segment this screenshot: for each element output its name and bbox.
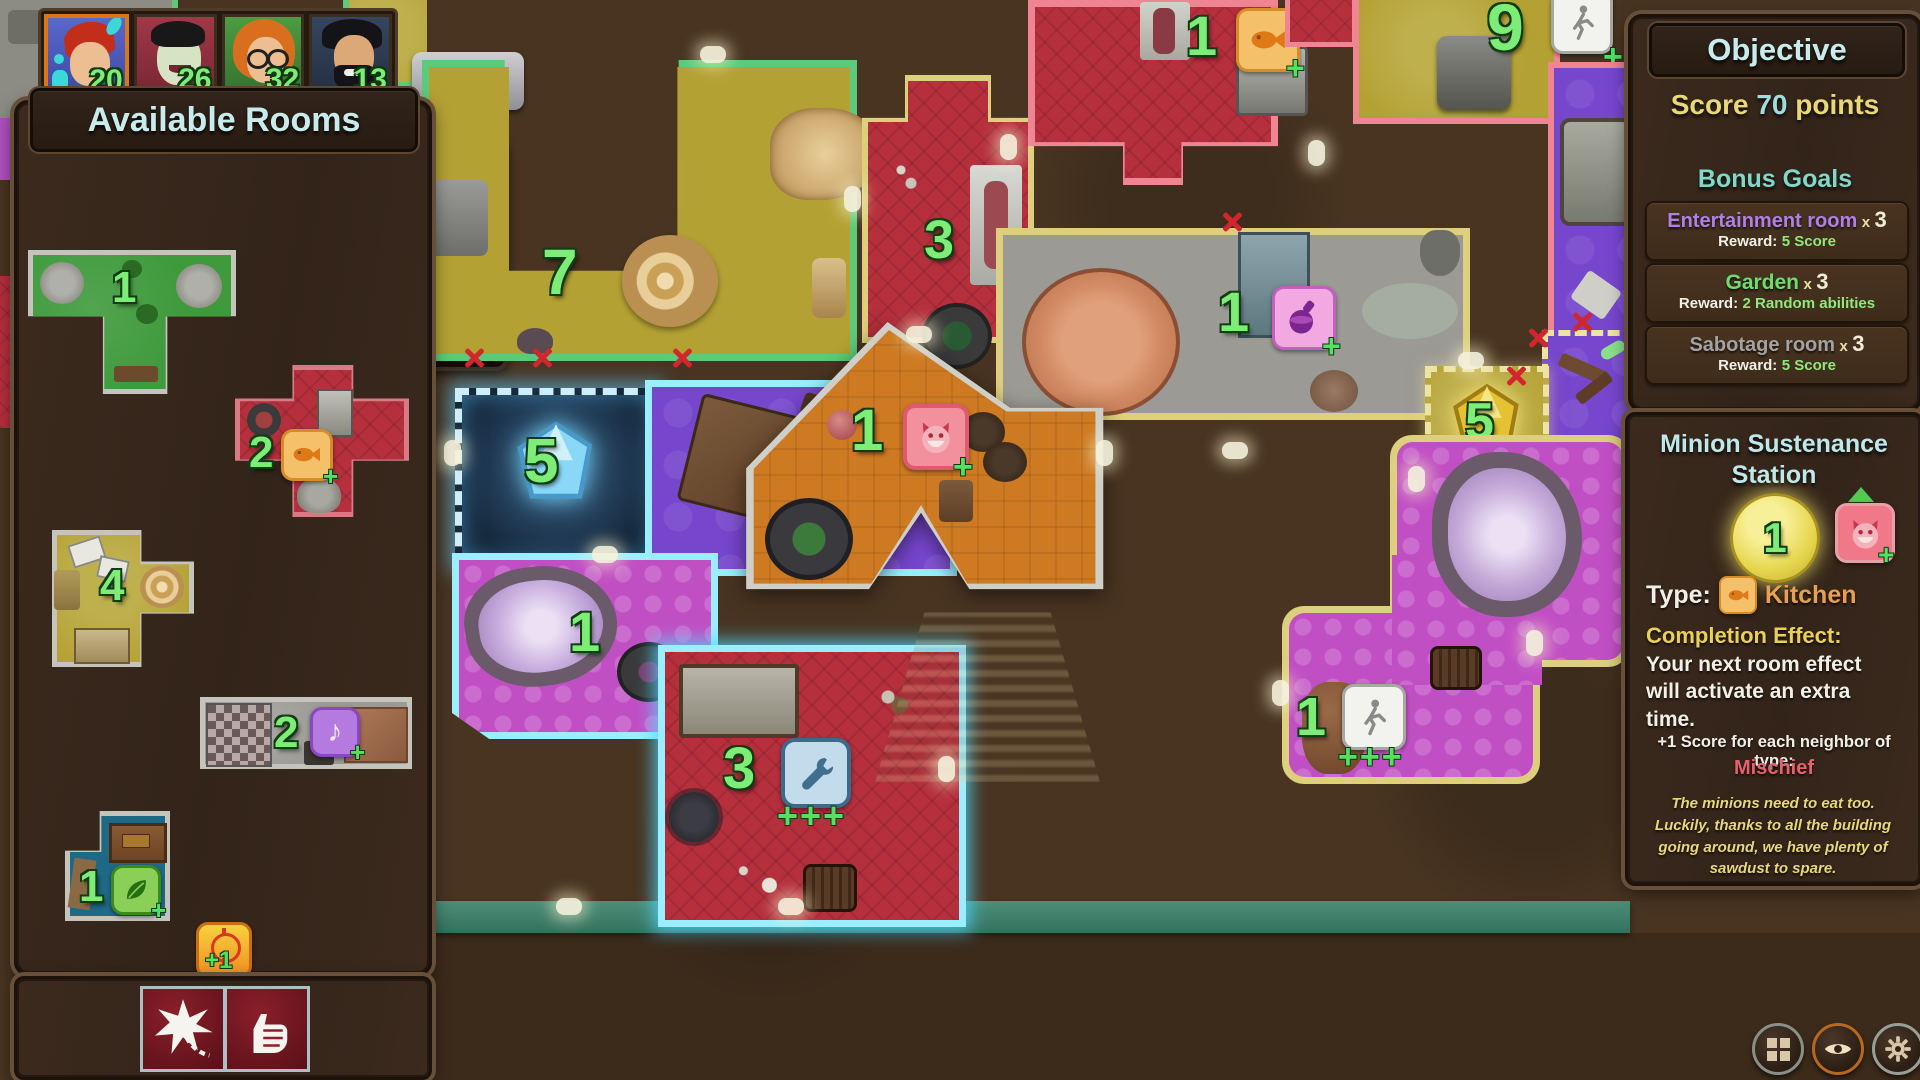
crosshair-tick xyxy=(222,928,226,935)
conveyor-band xyxy=(340,901,1630,933)
plus-marker: + xyxy=(1322,330,1341,362)
objective-panel: Objective Score 70 points Bonus Goals En… xyxy=(1628,14,1920,412)
door-marker xyxy=(1272,680,1289,706)
type-label: Type: xyxy=(1646,581,1711,610)
room-count: 5 xyxy=(524,431,558,493)
lower-dirt xyxy=(340,933,1920,1080)
music-note-glyph: ♪ xyxy=(328,715,343,749)
gear-icon xyxy=(1883,1034,1913,1064)
goal-name: Sabotage room xyxy=(1689,334,1835,356)
door-marker xyxy=(844,186,861,212)
door-marker xyxy=(1222,442,1248,459)
grid-view-button[interactable] xyxy=(1752,1023,1804,1075)
oval-rug xyxy=(1362,283,1458,339)
barrel xyxy=(803,864,857,912)
chair xyxy=(939,480,973,522)
goal-name: Garden xyxy=(1725,271,1799,294)
plus-marker: + xyxy=(1286,52,1305,84)
room-count: 3 xyxy=(723,740,755,798)
effect-label: Completion Effect: xyxy=(1646,623,1906,649)
goal-mult-n: 3 xyxy=(1852,331,1864,356)
plus-marker: + xyxy=(350,739,365,765)
boar-statue xyxy=(1420,230,1460,276)
plus-marker: + xyxy=(953,450,973,484)
devil-up-triangle-icon xyxy=(1848,487,1874,502)
room-red-bit xyxy=(1285,0,1357,47)
room-gem-5[interactable]: 5 xyxy=(455,388,659,567)
station-count: 1 xyxy=(1763,517,1786,559)
goal-reward: 5 Score xyxy=(1782,233,1836,250)
couch xyxy=(1560,118,1632,226)
door-marker xyxy=(1000,134,1017,160)
fist-icon xyxy=(237,999,297,1059)
station-title-line1: Minion Sustenance xyxy=(1628,429,1920,460)
stool xyxy=(1310,370,1358,412)
room-garden-7[interactable]: 7 xyxy=(422,60,857,361)
room-station-placing[interactable]: 1 + xyxy=(735,322,1107,640)
objective-title: Objective xyxy=(1707,32,1847,68)
goal-garden[interactable]: Garden x 3 Reward: 2 Random abilities xyxy=(1645,263,1909,323)
flavor-text: The minions need to eat too. Luckily, th… xyxy=(1644,793,1902,880)
fish-icon xyxy=(1719,576,1757,614)
geode-inner xyxy=(1448,468,1566,601)
door-marker xyxy=(1408,466,1425,492)
door-marker xyxy=(1458,352,1484,369)
gold-coil xyxy=(140,566,184,608)
crate xyxy=(109,823,167,863)
checkered-floor xyxy=(206,703,272,767)
ability-bomb-button[interactable] xyxy=(140,986,226,1072)
room-count: 7 xyxy=(542,240,578,304)
available-rooms-title: Available Rooms xyxy=(88,101,361,140)
thumb-music-room[interactable]: 2 ♪ + xyxy=(200,697,412,769)
eye-icon xyxy=(1823,1039,1853,1059)
game-screen: 7 3 1 + 9 + xyxy=(0,0,1920,1080)
goal-sabotage[interactable]: Sabotage room x 3 Reward: 5 Score xyxy=(1645,325,1909,385)
green-bottle xyxy=(1599,338,1628,361)
door-marker xyxy=(1526,630,1543,656)
goal-mult-n: 3 xyxy=(1875,207,1887,232)
neighbor-type: Mischief xyxy=(1628,757,1920,780)
blocked-x-icon xyxy=(530,346,554,370)
plus-marker: +++ xyxy=(1338,740,1404,774)
target-bonus-icon[interactable]: +1 xyxy=(196,922,252,978)
spiky-ball xyxy=(669,792,719,842)
throne xyxy=(54,570,80,610)
door-marker xyxy=(700,46,726,63)
room-count: 2 xyxy=(274,711,298,755)
settings-button[interactable] xyxy=(1872,1023,1920,1075)
goal-reward: 5 Score xyxy=(1782,357,1836,374)
plus-marker: + xyxy=(323,463,338,489)
plus-marker: +++ xyxy=(777,798,846,834)
statue xyxy=(40,262,84,304)
bush xyxy=(136,304,158,324)
gold-statue xyxy=(812,258,846,318)
gold-coil xyxy=(622,235,718,327)
objective-header: Objective xyxy=(1649,23,1905,77)
explosion-icon xyxy=(150,996,216,1062)
player-portraits: 20 26 32 13 xyxy=(38,8,398,100)
score-goal: Score 70 points xyxy=(1631,89,1919,121)
corpse-slab xyxy=(1140,2,1190,60)
barrel xyxy=(1430,646,1482,690)
room-magenta-sliver xyxy=(0,118,12,180)
cot xyxy=(679,664,799,738)
thumb-garden-room[interactable]: 1 xyxy=(28,250,236,394)
door-marker xyxy=(1308,140,1325,166)
goal-mult-n: 3 xyxy=(1816,269,1828,294)
goal-reward-label: Reward: xyxy=(1679,295,1738,312)
teal-dot xyxy=(54,54,64,64)
barrels xyxy=(983,442,1027,482)
ability-fist-button[interactable] xyxy=(224,986,310,1072)
skull-bits xyxy=(733,860,785,896)
bonus-counter: +1 xyxy=(205,949,232,973)
bed xyxy=(74,628,130,664)
robed-figure xyxy=(1153,8,1175,54)
door-marker xyxy=(906,326,932,343)
blocked-x-icon xyxy=(462,346,486,370)
plus-marker: + xyxy=(151,897,166,923)
room-count: 1 xyxy=(1186,8,1217,64)
station-panel: Minion Sustenance Station 1 + Type: Kitc… xyxy=(1625,412,1920,886)
goal-reward: 2 Random abilities xyxy=(1743,295,1876,312)
room-walk-1[interactable]: 1 +++ xyxy=(1282,435,1630,784)
room-count: 1 xyxy=(569,604,600,660)
blocked-x-icon xyxy=(1504,364,1528,388)
door-marker xyxy=(1096,440,1113,466)
room-count: 1 xyxy=(1296,690,1326,744)
goal-mult-x: x xyxy=(1803,276,1811,293)
door-marker xyxy=(556,898,582,915)
score-goal-value: 70 xyxy=(1756,89,1787,120)
grid-icon xyxy=(1767,1038,1790,1061)
available-rooms-header: Available Rooms xyxy=(30,88,418,152)
crate-panel xyxy=(122,834,150,848)
station-type-row: Type: Kitchen xyxy=(1646,575,1906,615)
station-title: Minion Sustenance Station xyxy=(1628,429,1920,492)
blocked-x-icon xyxy=(1570,310,1594,334)
room-count: 2 xyxy=(249,431,273,475)
goal-entertainment[interactable]: Entertainment room x 3 Reward: 5 Score xyxy=(1645,201,1909,261)
door-marker xyxy=(938,756,955,782)
score-goal-prefix: Score xyxy=(1671,89,1749,120)
eye-view-button[interactable] xyxy=(1812,1023,1864,1075)
thumb-leaf-room[interactable]: 1 + xyxy=(65,811,170,921)
room-count: 1 xyxy=(112,266,136,310)
score-goal-suffix: points xyxy=(1795,89,1879,120)
door-marker xyxy=(778,898,804,915)
type-value: Kitchen xyxy=(1765,581,1857,610)
cauldron xyxy=(765,498,853,580)
bonus-goals-title: Bonus Goals xyxy=(1631,165,1919,194)
room-kitchen-1[interactable]: 1 + xyxy=(1028,0,1278,185)
room-count: 9 xyxy=(1487,0,1524,60)
room-throne-9[interactable]: 9 + xyxy=(1353,0,1560,124)
effect-text: Your next room effect will activate an e… xyxy=(1646,651,1898,733)
goal-mult-x: x xyxy=(1839,338,1847,355)
goal-reward-label: Reward: xyxy=(1718,357,1777,374)
thumb-gold-room[interactable]: 4 xyxy=(52,530,194,667)
door-marker xyxy=(444,440,461,466)
plus-marker: + xyxy=(1878,541,1894,569)
gray-throne xyxy=(430,180,488,256)
room-count: 1 xyxy=(79,865,103,909)
thumb-kitchen-room[interactable]: 2 + xyxy=(235,365,409,517)
hair xyxy=(151,21,205,47)
room-purple-debris[interactable] xyxy=(1542,330,1636,444)
blocked-x-icon xyxy=(670,346,694,370)
goal-reward-label: Reward: xyxy=(1718,233,1777,250)
station-count-circle: 1 xyxy=(1730,493,1820,583)
room-count: 1 xyxy=(1218,284,1249,340)
door-marker xyxy=(592,546,618,563)
room-count: 1 xyxy=(851,402,883,460)
blocked-x-icon xyxy=(1220,210,1244,234)
room-count: 4 xyxy=(100,564,124,608)
goal-name: Entertainment room xyxy=(1667,210,1857,232)
statue xyxy=(176,264,222,308)
goal-mult-x: x xyxy=(1862,214,1870,231)
teal-minion xyxy=(52,70,68,90)
bench xyxy=(114,366,158,382)
blocked-x-icon xyxy=(1526,326,1550,350)
bones xyxy=(876,137,926,203)
room-count: 3 xyxy=(924,213,954,267)
station-title-line2: Station xyxy=(1628,460,1920,491)
